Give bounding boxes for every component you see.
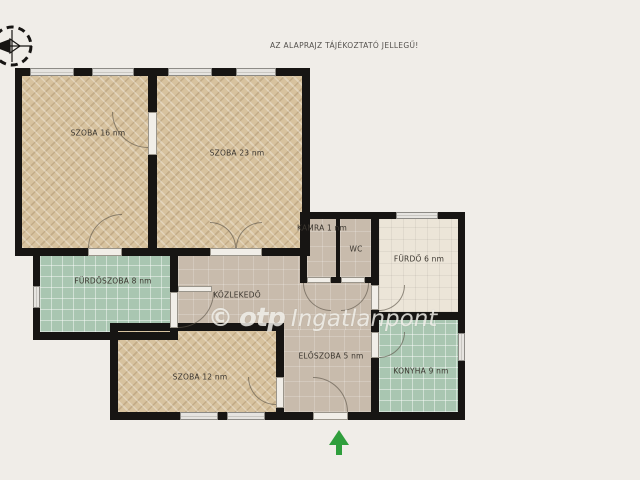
- door-furdo: [371, 285, 379, 310]
- window-szoba12-2: [227, 412, 265, 420]
- room-label-furdoszoba: FÜRDŐSZOBA 8 nm: [74, 277, 151, 286]
- room-label-eloszoba: ELŐSZOBA 5 nm: [298, 352, 363, 361]
- window-furdoszoba: [33, 286, 40, 308]
- door-entrance: [313, 412, 348, 420]
- entrance-arrow-stem: [336, 444, 342, 455]
- window-furdo: [396, 212, 438, 219]
- room-label-konyha: KONYHA 9 nm: [393, 367, 448, 376]
- room-floor-furdoszoba: [40, 256, 170, 332]
- wall-divider-szoba: [148, 68, 157, 256]
- room-floor-szoba23: [157, 76, 302, 248]
- room-label-szoba12: SZOBA 12 nm: [173, 373, 228, 382]
- door-furdoszoba: [170, 292, 178, 328]
- door-szoba16-szoba23: [148, 112, 157, 155]
- floorplan-canvas: AZ ALAPRAJZ TÁJÉKOZTATÓ JELLEGŰ!: [0, 0, 640, 480]
- room-label-kozlekedo: KÖZLEKEDŐ: [213, 291, 261, 300]
- window-szoba12-1: [180, 412, 218, 420]
- window-szoba16-2: [92, 68, 134, 76]
- compass-icon: [0, 22, 38, 70]
- window-szoba23-2: [236, 68, 276, 76]
- wall-furdo-bottom: [371, 312, 465, 320]
- room-label-szoba23: SZOBA 23 nm: [210, 149, 265, 158]
- wall-szoba12-top: [110, 323, 284, 331]
- door-szoba16: [88, 248, 122, 256]
- wall-upper-bottom: [15, 248, 310, 256]
- wall-left-upper: [15, 68, 22, 256]
- wall-rightblock-top: [300, 212, 465, 219]
- room-label-wc: WC: [349, 245, 362, 254]
- room-floor-szoba12: [118, 331, 276, 412]
- room-floor-szoba16: [22, 76, 148, 248]
- room-label-szoba16: SZOBA 16 nm: [71, 129, 126, 138]
- window-szoba23-1: [168, 68, 212, 76]
- entrance-arrow-icon: [329, 430, 349, 445]
- wall-bottom: [110, 412, 465, 420]
- door-szoba23-double: [210, 248, 262, 256]
- wall-furdoszoba-bottom: [33, 332, 178, 340]
- room-label-kamra: KAMRA 1 nm: [297, 224, 347, 233]
- room-label-furdo: FÜRDŐ 6 nm: [394, 255, 444, 264]
- door-konyha: [371, 332, 379, 358]
- disclaimer-text: AZ ALAPRAJZ TÁJÉKOZTATÓ JELLEGŰ!: [270, 41, 419, 50]
- door-szoba12: [276, 377, 284, 408]
- window-konyha: [458, 333, 465, 361]
